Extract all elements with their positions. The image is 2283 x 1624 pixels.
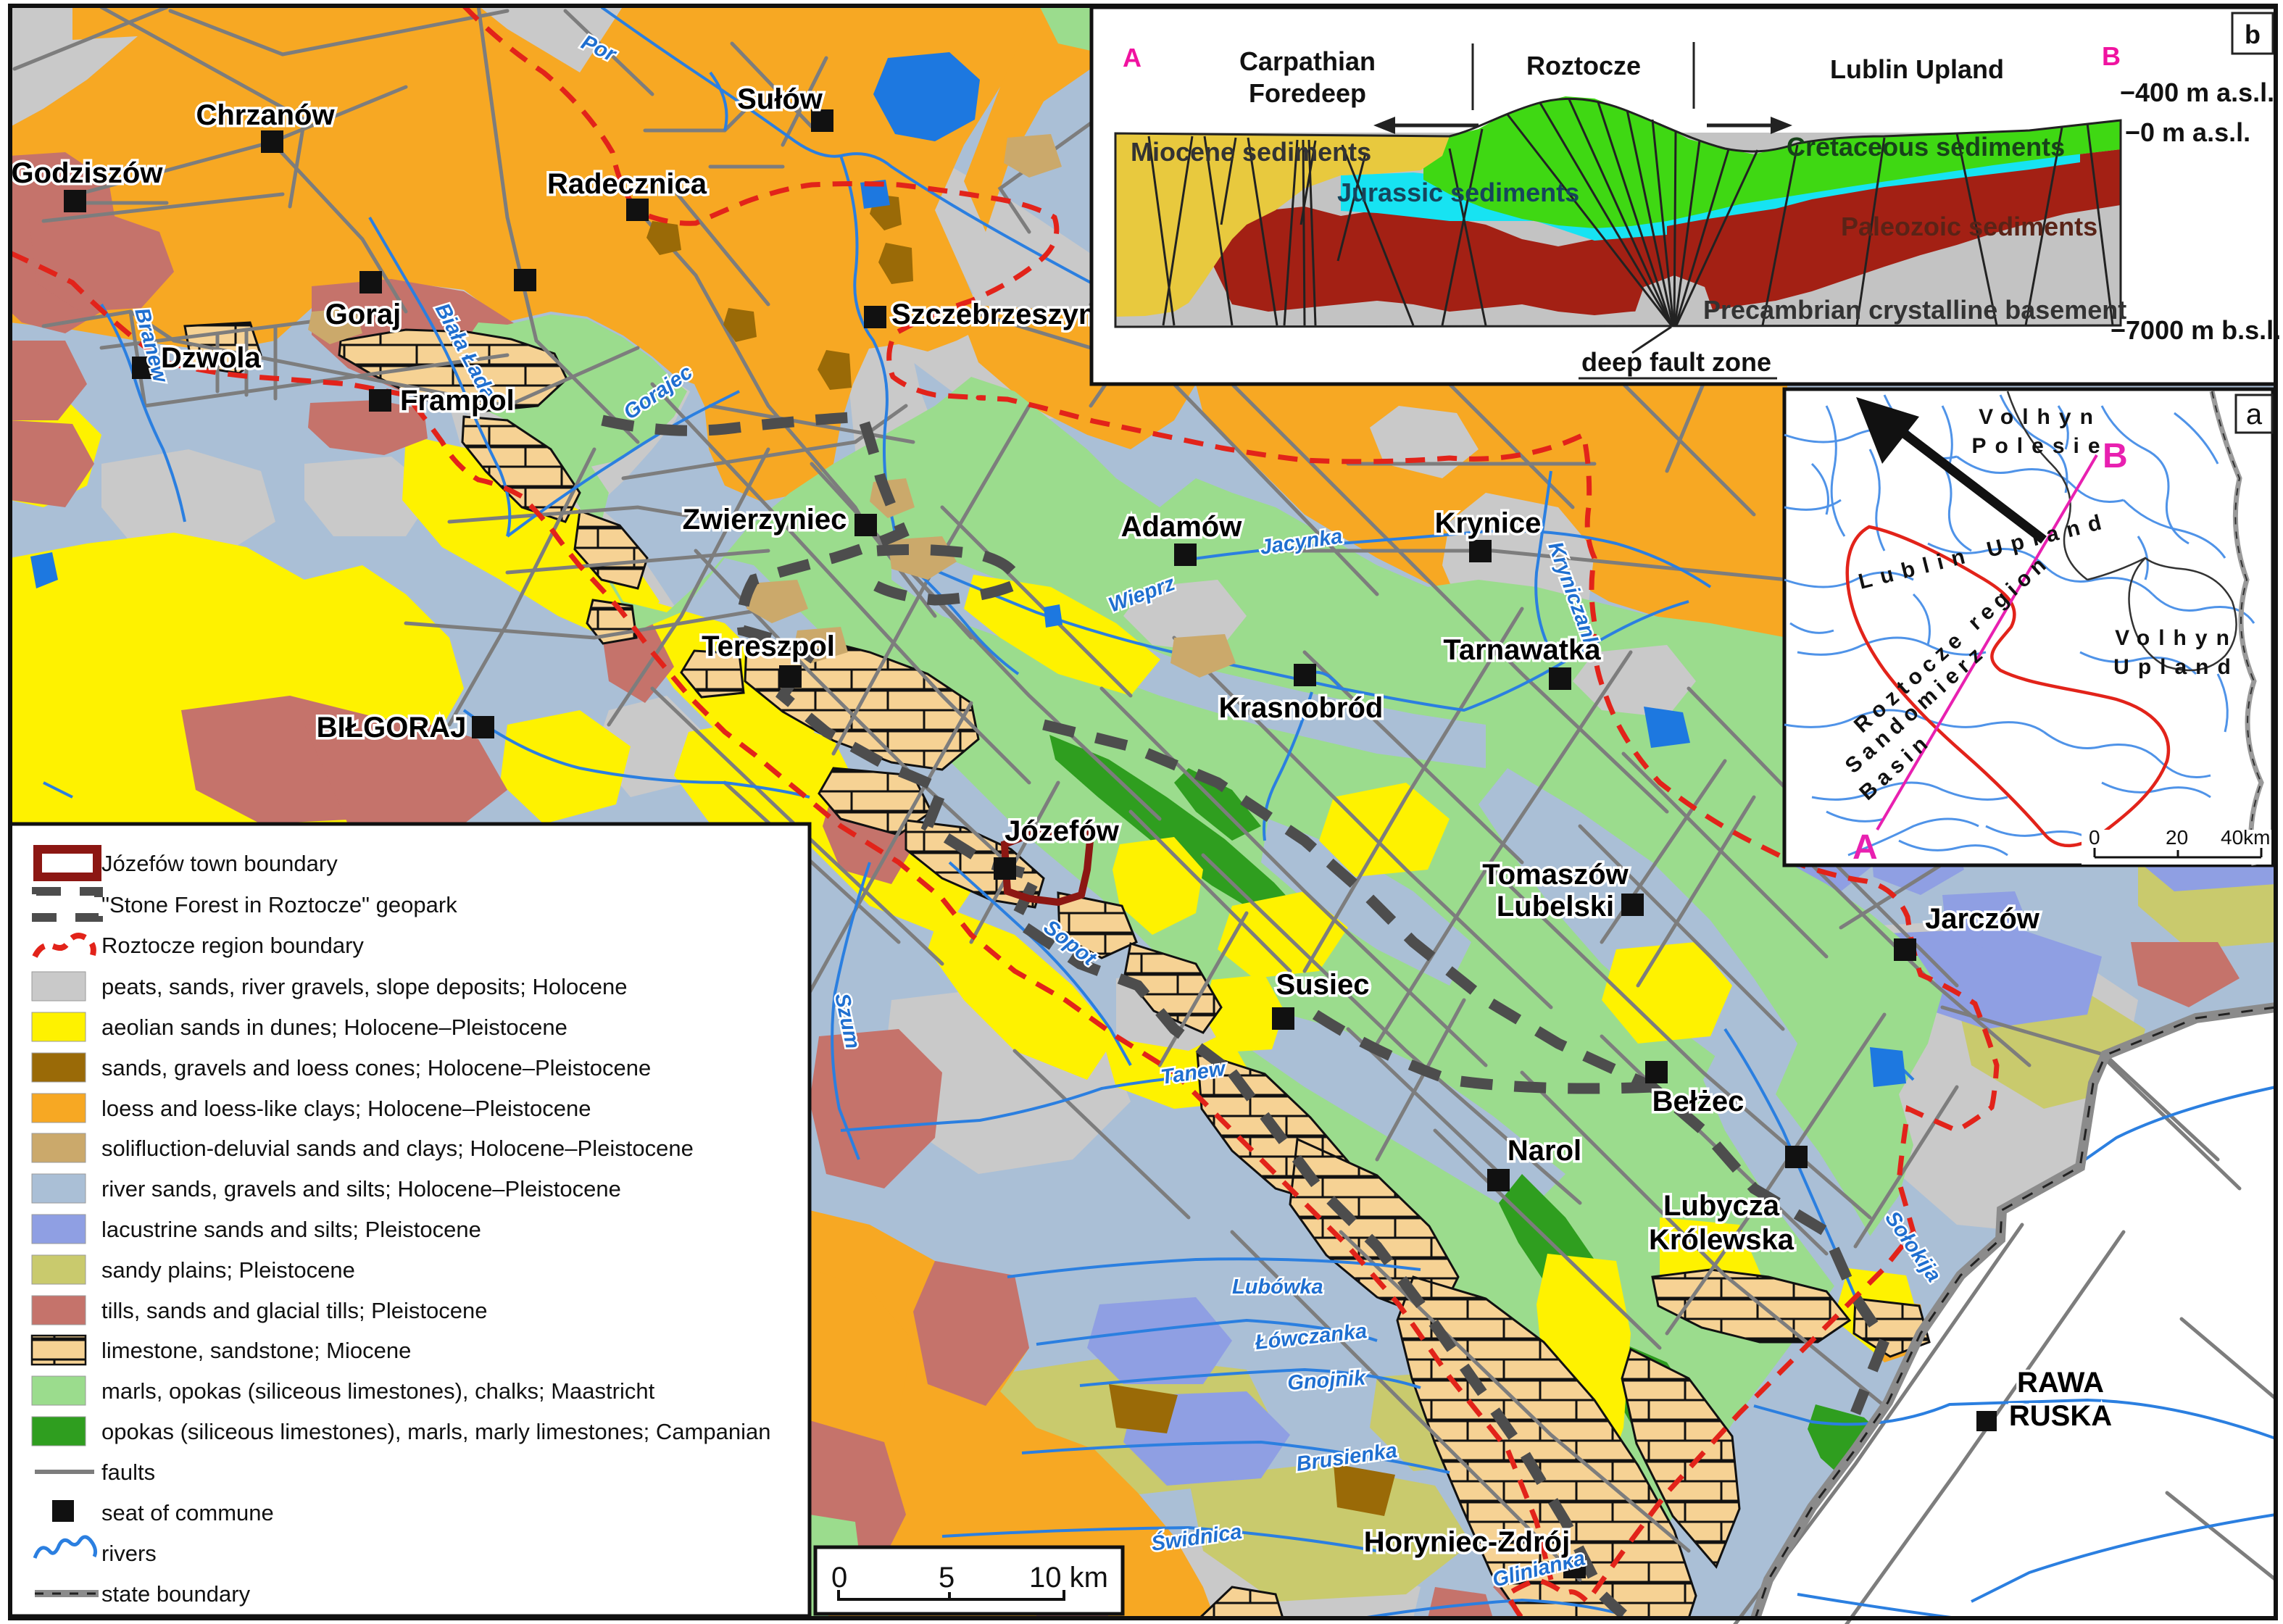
svg-text:Godziszów: Godziszów	[12, 157, 164, 189]
svg-text:A: A	[1852, 828, 1878, 867]
svg-text:Krasnobród: Krasnobród	[1219, 692, 1384, 724]
svg-text:Miocene sediments: Miocene sediments	[1131, 137, 1371, 167]
svg-text:rivers: rivers	[101, 1541, 157, 1566]
svg-text:Jurassic sediments: Jurassic sediments	[1337, 178, 1579, 207]
svg-text:tills, sands and glacial tills: tills, sands and glacial tills; Pleistoc…	[101, 1298, 487, 1323]
svg-text:0: 0	[2089, 826, 2100, 849]
svg-text:−400 m a.s.l.: −400 m a.s.l.	[2120, 78, 2274, 107]
svg-text:a: a	[2246, 399, 2263, 430]
svg-text:aeolian sands in dunes; Holoce: aeolian sands in dunes; Holocene–Pleisto…	[101, 1015, 567, 1040]
svg-text:Radecznica: Radecznica	[547, 168, 707, 200]
svg-text:solifluction-deluvial sands an: solifluction-deluvial sands and clays; H…	[101, 1136, 694, 1161]
svg-text:Tereszpol: Tereszpol	[702, 630, 835, 662]
svg-text:Lublin Upland: Lublin Upland	[1830, 54, 2004, 84]
svg-text:0: 0	[831, 1562, 847, 1594]
svg-text:Adamów: Adamów	[1121, 511, 1243, 543]
svg-text:sands, gravels and loess cones: sands, gravels and loess cones; Holocene…	[101, 1055, 651, 1080]
svg-text:A: A	[1123, 43, 1141, 72]
svg-text:Volhyn: Volhyn	[1979, 405, 2102, 429]
svg-text:Bełżec: Bełżec	[1652, 1086, 1745, 1117]
svg-text:"Stone Forest in Roztocze" geo: "Stone Forest in Roztocze" geopark	[101, 892, 457, 917]
svg-text:marls, opokas (siliceous limes: marls, opokas (siliceous limestones), ch…	[101, 1378, 655, 1404]
svg-text:Paleozoic sediments: Paleozoic sediments	[1841, 212, 2097, 241]
svg-text:state boundary: state boundary	[101, 1581, 251, 1607]
svg-text:Lubycza: Lubycza	[1663, 1190, 1780, 1222]
svg-text:Jarczów: Jarczów	[1925, 903, 2040, 935]
svg-text:RAWA: RAWA	[2017, 1367, 2104, 1399]
svg-text:BIŁGORAJ: BIŁGORAJ	[317, 712, 467, 744]
svg-text:faults: faults	[101, 1459, 155, 1485]
svg-text:B: B	[2102, 41, 2121, 71]
svg-text:Lubówka: Lubówka	[1232, 1275, 1323, 1299]
svg-text:Chrzanów: Chrzanów	[196, 99, 335, 131]
svg-text:Polesie: Polesie	[1971, 434, 2108, 458]
svg-text:Tarnawatka: Tarnawatka	[1443, 634, 1601, 666]
svg-text:sandy plains; Pleistocene: sandy plains; Pleistocene	[101, 1257, 355, 1283]
svg-text:Cretaceous sediments: Cretaceous sediments	[1787, 132, 2065, 162]
svg-text:limestone, sandstone; Miocene: limestone, sandstone; Miocene	[101, 1338, 411, 1363]
svg-text:Volhyn: Volhyn	[2115, 626, 2238, 650]
svg-text:10 km: 10 km	[1029, 1562, 1108, 1594]
svg-text:Susiec: Susiec	[1276, 969, 1370, 1001]
svg-text:peats, sands, river gravels, s: peats, sands, river gravels, slope depos…	[101, 974, 627, 999]
svg-text:Upland: Upland	[2113, 655, 2240, 679]
svg-text:seat of commune: seat of commune	[101, 1500, 274, 1525]
svg-text:lacustrine sands and silts; Pl: lacustrine sands and silts; Pleistocene	[101, 1217, 481, 1242]
svg-text:Krynice: Krynice	[1435, 507, 1542, 539]
svg-text:opokas (siliceous limestones),: opokas (siliceous limestones), marls, ma…	[101, 1419, 770, 1444]
svg-text:Lubelski: Lubelski	[1497, 891, 1614, 923]
svg-text:40km: 40km	[2221, 826, 2270, 849]
svg-text:Foredeep: Foredeep	[1249, 78, 1366, 108]
svg-text:Zwierzyniec: Zwierzyniec	[683, 504, 847, 536]
svg-text:Roztocze region boundary: Roztocze region boundary	[101, 933, 364, 958]
svg-text:Dzwola: Dzwola	[161, 342, 262, 374]
svg-text:Szczebrzeszyn: Szczebrzeszyn	[891, 299, 1096, 330]
svg-text:5: 5	[939, 1562, 955, 1594]
svg-text:Horyniec-Zdrój: Horyniec-Zdrój	[1364, 1526, 1570, 1558]
svg-text:loess and loess-like clays; Ho: loess and loess-like clays; Holocene–Ple…	[101, 1096, 591, 1121]
svg-text:river sands, gravels and silts: river sands, gravels and silts; Holocene…	[101, 1176, 621, 1202]
svg-text:−7000 m b.s.l.: −7000 m b.s.l.	[2111, 315, 2281, 345]
svg-text:Frampol: Frampol	[400, 385, 515, 417]
svg-text:deep fault zone: deep fault zone	[1581, 347, 1771, 377]
svg-text:−0 m a.s.l.: −0 m a.s.l.	[2125, 117, 2250, 147]
svg-text:Roztocze: Roztocze	[1526, 51, 1641, 80]
svg-text:Sułów: Sułów	[737, 83, 823, 115]
svg-text:Carpathian: Carpathian	[1239, 46, 1376, 76]
svg-text:Tomaszów: Tomaszów	[1482, 859, 1629, 891]
svg-text:Precambrian crystalline baseme: Precambrian crystalline basement	[1703, 295, 2126, 325]
svg-text:Goraj: Goraj	[325, 299, 401, 330]
svg-text:Józefów: Józefów	[1005, 815, 1120, 847]
svg-text:Józefów town boundary: Józefów town boundary	[101, 851, 338, 876]
svg-text:Narol: Narol	[1508, 1135, 1581, 1167]
svg-text:20: 20	[2166, 826, 2188, 849]
svg-text:Królewska: Królewska	[1649, 1224, 1795, 1256]
svg-text:b: b	[2245, 20, 2261, 49]
svg-text:RUSKA: RUSKA	[2009, 1400, 2112, 1432]
